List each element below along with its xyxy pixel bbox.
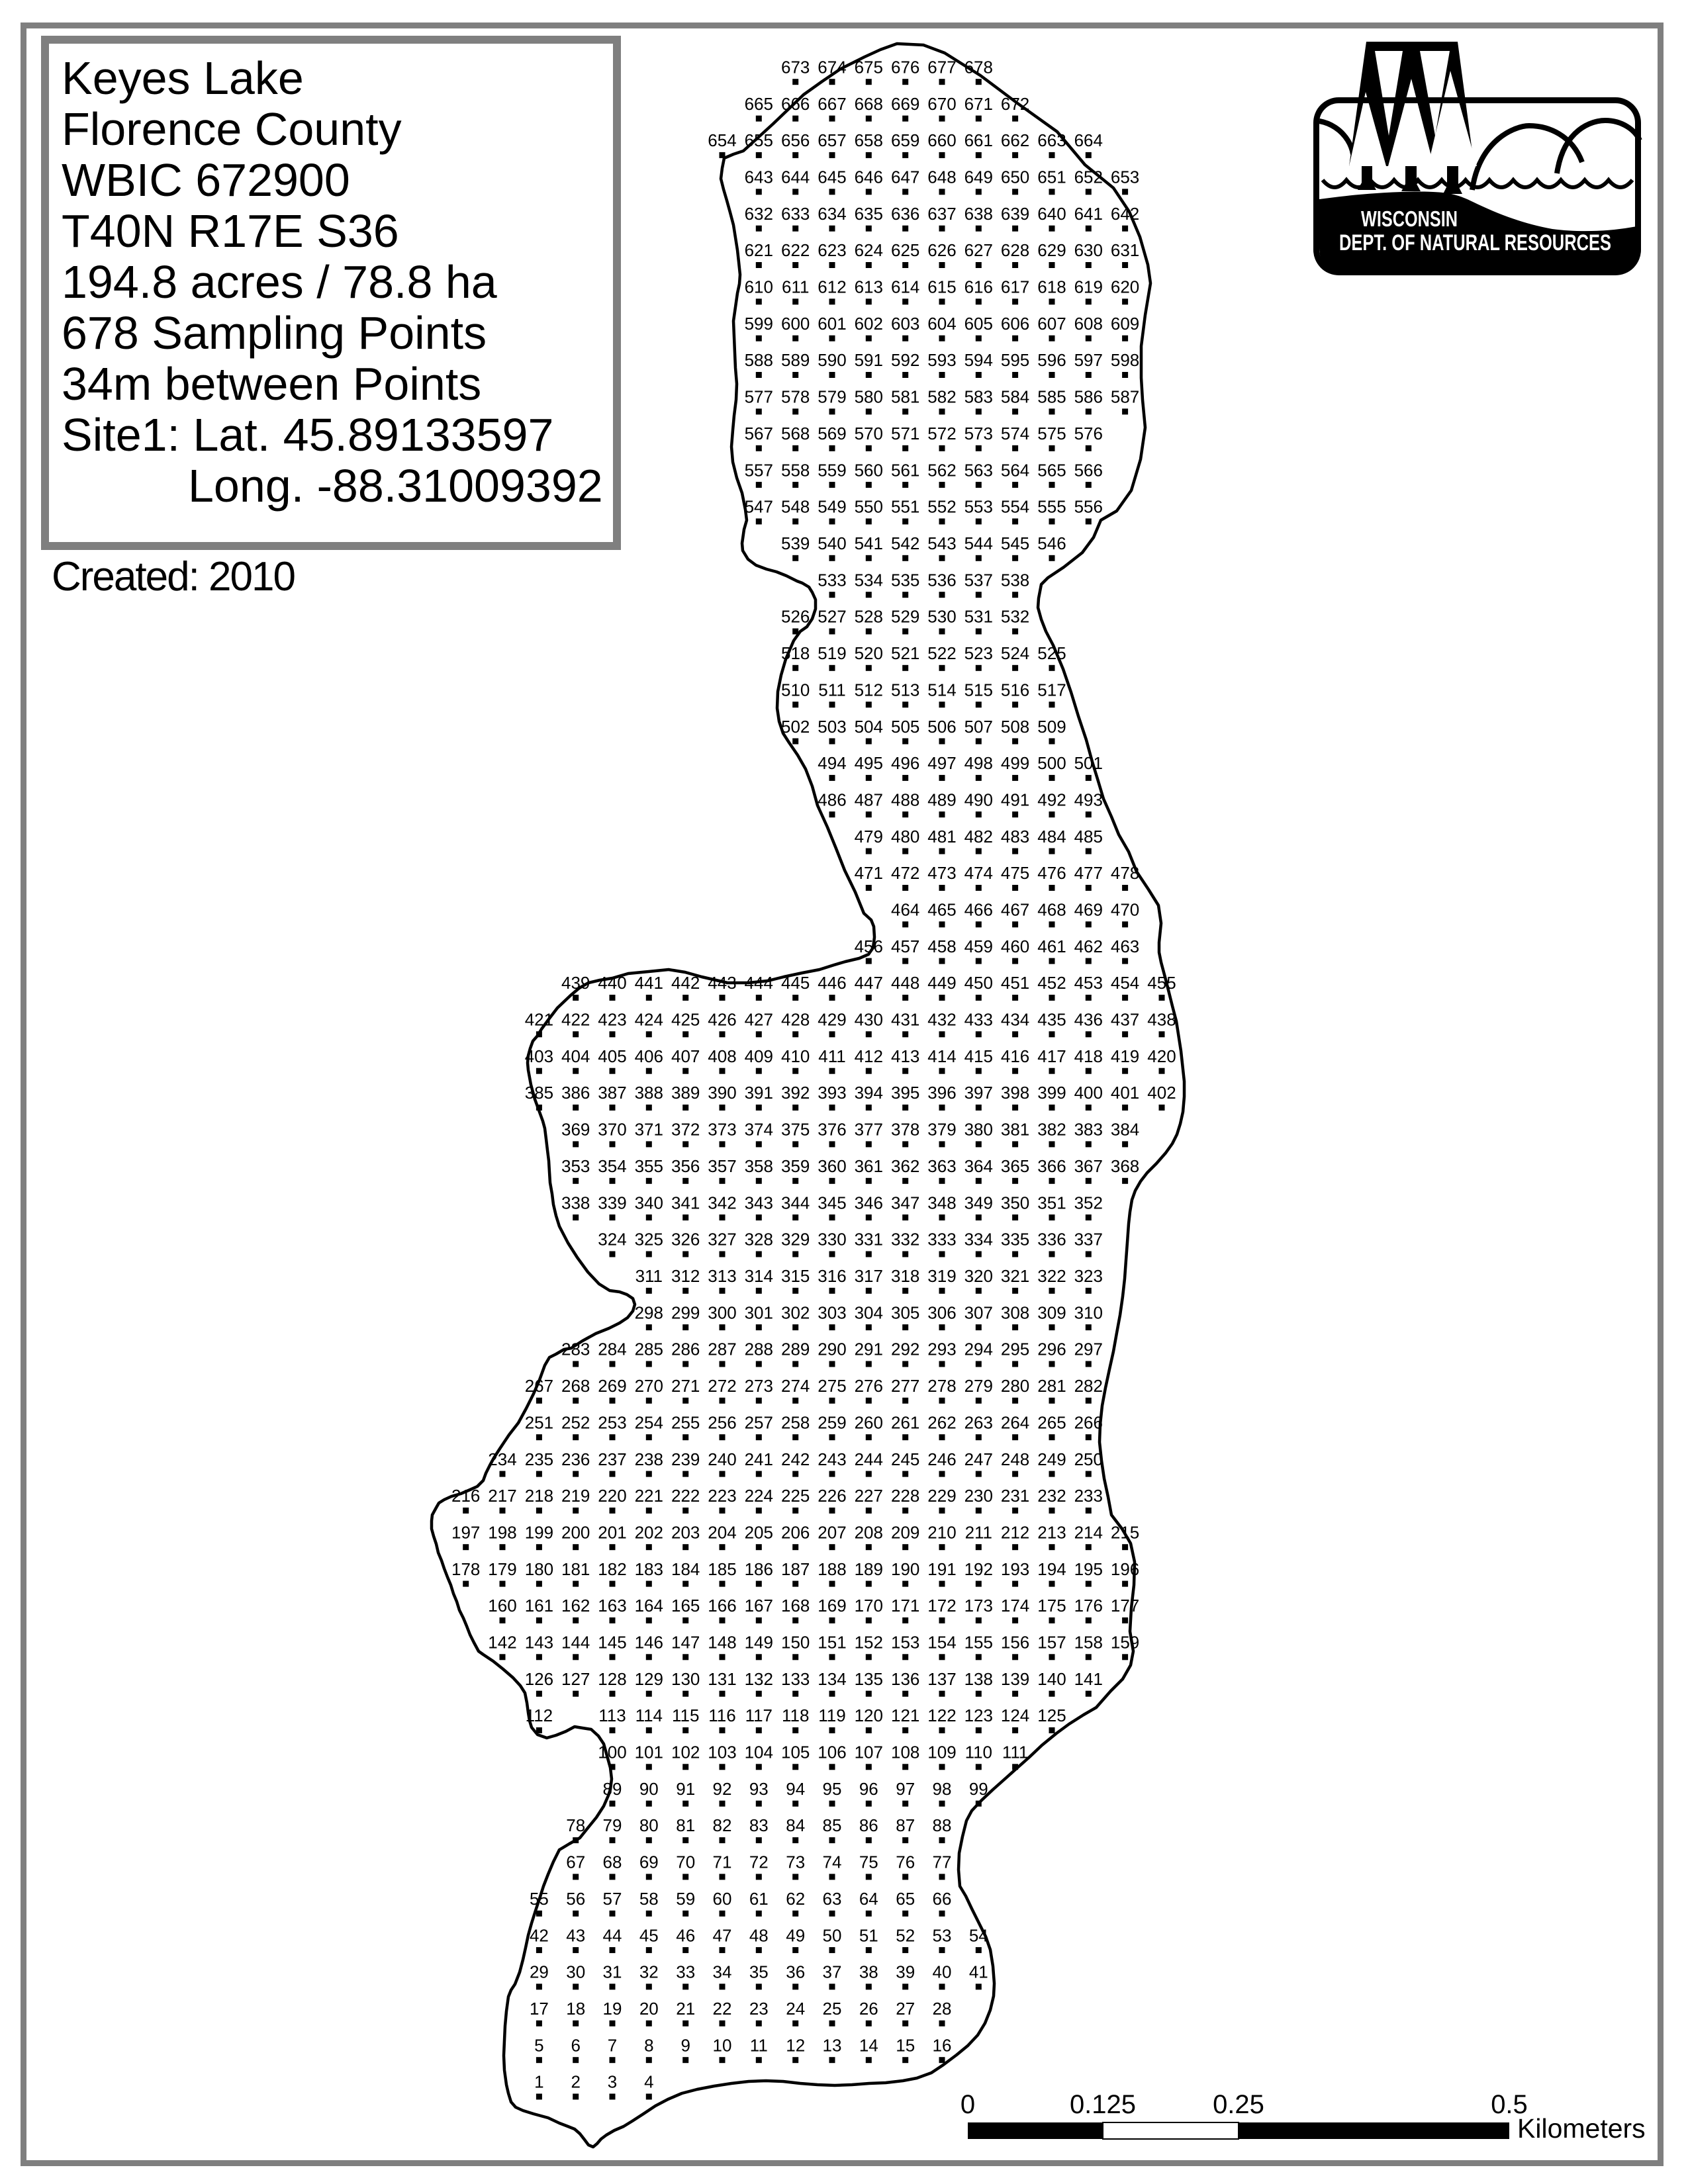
svg-text:632: 632 [745, 204, 773, 224]
svg-text:639: 639 [1001, 204, 1029, 224]
svg-text:197: 197 [451, 1522, 480, 1542]
svg-text:168: 168 [781, 1596, 810, 1615]
svg-text:669: 669 [891, 94, 919, 114]
svg-text:482: 482 [964, 827, 993, 846]
svg-text:369: 369 [561, 1120, 590, 1140]
svg-text:238: 238 [635, 1449, 663, 1469]
svg-text:62: 62 [786, 1889, 805, 1909]
svg-text:519: 519 [818, 643, 846, 663]
svg-text:570: 570 [855, 424, 883, 443]
svg-text:449: 449 [927, 973, 956, 993]
svg-text:29: 29 [530, 1962, 549, 1982]
svg-text:537: 537 [964, 570, 993, 590]
svg-text:196: 196 [1111, 1559, 1139, 1579]
svg-text:421: 421 [525, 1010, 553, 1030]
svg-text:396: 396 [927, 1083, 956, 1103]
svg-text:538: 538 [1001, 570, 1029, 590]
svg-text:562: 562 [927, 460, 956, 480]
svg-text:381: 381 [1001, 1120, 1029, 1140]
svg-text:472: 472 [891, 863, 919, 883]
svg-text:217: 217 [488, 1486, 516, 1506]
svg-text:337: 337 [1074, 1230, 1103, 1250]
svg-text:416: 416 [1001, 1046, 1029, 1066]
svg-text:330: 330 [818, 1230, 846, 1250]
svg-text:120: 120 [855, 1706, 883, 1725]
svg-text:129: 129 [635, 1669, 663, 1689]
svg-text:528: 528 [855, 607, 883, 627]
svg-text:576: 576 [1074, 424, 1103, 443]
svg-text:673: 673 [781, 58, 810, 77]
svg-text:234: 234 [488, 1449, 516, 1469]
svg-text:42: 42 [530, 1925, 549, 1945]
svg-text:588: 588 [745, 350, 773, 370]
svg-text:1: 1 [534, 2072, 543, 2092]
svg-text:291: 291 [855, 1340, 883, 1359]
svg-text:331: 331 [855, 1230, 883, 1250]
svg-text:368: 368 [1111, 1156, 1139, 1176]
svg-text:608: 608 [1074, 314, 1103, 334]
svg-text:450: 450 [964, 973, 993, 993]
svg-text:141: 141 [1074, 1669, 1103, 1689]
svg-text:453: 453 [1074, 973, 1103, 993]
svg-text:619: 619 [1074, 277, 1103, 297]
svg-text:85: 85 [823, 1815, 842, 1835]
svg-text:77: 77 [933, 1852, 952, 1872]
svg-text:578: 578 [781, 387, 810, 407]
svg-text:496: 496 [891, 753, 919, 773]
svg-text:14: 14 [859, 2035, 878, 2055]
svg-text:535: 535 [891, 570, 919, 590]
svg-text:DEPT. OF NATURAL RESOURCES: DEPT. OF NATURAL RESOURCES [1339, 230, 1611, 255]
svg-text:57: 57 [603, 1889, 622, 1909]
svg-text:271: 271 [671, 1376, 700, 1396]
svg-text:469: 469 [1074, 900, 1103, 920]
svg-text:382: 382 [1037, 1120, 1066, 1140]
svg-text:19: 19 [603, 1999, 622, 2019]
svg-text:322: 322 [1037, 1266, 1066, 1286]
svg-text:194: 194 [1037, 1559, 1066, 1579]
svg-text:92: 92 [713, 1779, 732, 1799]
svg-text:Site1: Lat. 45.89133597: Site1: Lat. 45.89133597 [62, 409, 553, 461]
svg-text:334: 334 [964, 1230, 993, 1250]
svg-text:340: 340 [635, 1193, 663, 1212]
svg-text:429: 429 [818, 1010, 846, 1030]
svg-text:467: 467 [1001, 900, 1029, 920]
svg-text:226: 226 [818, 1486, 846, 1506]
svg-text:251: 251 [525, 1412, 553, 1432]
svg-text:364: 364 [964, 1156, 993, 1176]
svg-text:647: 647 [891, 167, 919, 187]
svg-text:392: 392 [781, 1083, 810, 1103]
svg-text:90: 90 [639, 1779, 659, 1799]
svg-text:601: 601 [818, 314, 846, 334]
svg-text:281: 281 [1037, 1376, 1066, 1396]
svg-text:158: 158 [1074, 1633, 1103, 1653]
svg-text:37: 37 [823, 1962, 842, 1982]
svg-text:665: 665 [745, 94, 773, 114]
svg-text:159: 159 [1111, 1633, 1139, 1653]
svg-text:213: 213 [1037, 1522, 1066, 1542]
svg-text:209: 209 [891, 1522, 919, 1542]
svg-text:349: 349 [964, 1193, 993, 1212]
svg-text:84: 84 [786, 1815, 805, 1835]
svg-text:208: 208 [855, 1522, 883, 1542]
svg-text:190: 190 [891, 1559, 919, 1579]
svg-text:28: 28 [933, 1999, 952, 2019]
svg-text:186: 186 [745, 1559, 773, 1579]
svg-text:308: 308 [1001, 1302, 1029, 1322]
svg-text:34: 34 [713, 1962, 732, 1982]
svg-text:391: 391 [745, 1083, 773, 1103]
svg-text:648: 648 [927, 167, 956, 187]
svg-text:64: 64 [859, 1889, 878, 1909]
svg-text:0: 0 [961, 2090, 975, 2119]
svg-text:586: 586 [1074, 387, 1103, 407]
svg-text:635: 635 [855, 204, 883, 224]
svg-text:237: 237 [598, 1449, 626, 1469]
svg-text:336: 336 [1037, 1230, 1066, 1250]
svg-text:45: 45 [639, 1925, 659, 1945]
svg-text:603: 603 [891, 314, 919, 334]
svg-text:355: 355 [635, 1156, 663, 1176]
svg-text:128: 128 [598, 1669, 626, 1689]
svg-text:489: 489 [927, 790, 956, 810]
svg-text:286: 286 [671, 1340, 700, 1359]
svg-text:299: 299 [671, 1302, 700, 1322]
svg-text:118: 118 [782, 1706, 809, 1725]
svg-text:55: 55 [530, 1889, 549, 1909]
svg-text:424: 424 [635, 1010, 663, 1030]
svg-text:672: 672 [1001, 94, 1029, 114]
svg-text:629: 629 [1037, 240, 1066, 260]
svg-text:300: 300 [708, 1302, 736, 1322]
svg-text:495: 495 [855, 753, 883, 773]
svg-text:452: 452 [1037, 973, 1066, 993]
svg-text:499: 499 [1001, 753, 1029, 773]
svg-text:401: 401 [1111, 1083, 1139, 1103]
svg-text:138: 138 [964, 1669, 993, 1689]
svg-text:548: 548 [781, 497, 810, 517]
svg-text:282: 282 [1074, 1376, 1103, 1396]
svg-text:205: 205 [745, 1522, 773, 1542]
svg-text:99: 99 [969, 1779, 988, 1799]
svg-text:223: 223 [708, 1486, 736, 1506]
svg-text:427: 427 [745, 1010, 773, 1030]
svg-text:81: 81 [676, 1815, 695, 1835]
svg-text:316: 316 [818, 1266, 846, 1286]
svg-text:577: 577 [745, 387, 773, 407]
svg-text:618: 618 [1037, 277, 1066, 297]
svg-text:110: 110 [965, 1743, 992, 1762]
svg-text:134: 134 [818, 1669, 846, 1689]
svg-text:521: 521 [891, 643, 919, 663]
svg-text:343: 343 [745, 1193, 773, 1212]
svg-text:270: 270 [635, 1376, 663, 1396]
svg-text:441: 441 [635, 973, 663, 993]
svg-text:310: 310 [1074, 1302, 1103, 1322]
svg-text:587: 587 [1111, 387, 1139, 407]
svg-text:480: 480 [891, 827, 919, 846]
svg-text:674: 674 [818, 58, 846, 77]
svg-text:0.25: 0.25 [1213, 2090, 1264, 2119]
svg-text:597: 597 [1074, 350, 1103, 370]
svg-text:261: 261 [891, 1412, 919, 1432]
svg-text:321: 321 [1001, 1266, 1029, 1286]
svg-text:296: 296 [1037, 1340, 1066, 1359]
svg-text:415: 415 [964, 1046, 993, 1066]
svg-text:488: 488 [891, 790, 919, 810]
svg-text:457: 457 [891, 936, 919, 956]
svg-text:107: 107 [855, 1743, 883, 1762]
svg-text:6: 6 [571, 2035, 580, 2055]
svg-text:117: 117 [745, 1706, 773, 1725]
svg-text:626: 626 [927, 240, 956, 260]
svg-text:23: 23 [749, 1999, 769, 2019]
svg-text:242: 242 [781, 1449, 810, 1469]
svg-text:224: 224 [745, 1486, 773, 1506]
svg-text:447: 447 [855, 973, 883, 993]
svg-text:407: 407 [671, 1046, 700, 1066]
svg-text:414: 414 [927, 1046, 956, 1066]
svg-text:273: 273 [745, 1376, 773, 1396]
svg-text:207: 207 [818, 1522, 846, 1542]
svg-text:263: 263 [964, 1412, 993, 1432]
svg-text:323: 323 [1074, 1266, 1103, 1286]
svg-text:289: 289 [781, 1340, 810, 1359]
svg-text:583: 583 [964, 387, 993, 407]
svg-text:438: 438 [1147, 1010, 1176, 1030]
svg-text:156: 156 [1001, 1633, 1029, 1653]
svg-text:575: 575 [1037, 424, 1066, 443]
svg-text:319: 319 [927, 1266, 956, 1286]
svg-text:573: 573 [964, 424, 993, 443]
svg-text:354: 354 [598, 1156, 626, 1176]
svg-text:523: 523 [964, 643, 993, 663]
svg-text:581: 581 [891, 387, 919, 407]
svg-text:658: 658 [855, 130, 883, 150]
svg-text:294: 294 [964, 1340, 993, 1359]
svg-text:228: 228 [891, 1486, 919, 1506]
svg-text:456: 456 [855, 936, 883, 956]
svg-text:160: 160 [488, 1596, 516, 1615]
svg-text:98: 98 [933, 1779, 952, 1799]
svg-text:678: 678 [964, 58, 993, 77]
svg-text:332: 332 [891, 1230, 919, 1250]
svg-text:2: 2 [571, 2072, 580, 2092]
svg-text:284: 284 [598, 1340, 626, 1359]
svg-text:179: 179 [488, 1559, 516, 1579]
svg-text:114: 114 [635, 1706, 663, 1725]
svg-text:660: 660 [927, 130, 956, 150]
svg-text:542: 542 [891, 533, 919, 553]
svg-text:Kilometers: Kilometers [1517, 2113, 1646, 2144]
svg-text:203: 203 [671, 1522, 700, 1542]
svg-text:147: 147 [671, 1633, 700, 1653]
svg-text:125: 125 [1037, 1706, 1066, 1725]
svg-text:133: 133 [781, 1669, 810, 1689]
svg-text:440: 440 [598, 973, 626, 993]
svg-text:328: 328 [745, 1230, 773, 1250]
svg-text:WISCONSIN: WISCONSIN [1361, 206, 1458, 231]
svg-text:276: 276 [855, 1376, 883, 1396]
svg-text:621: 621 [745, 240, 773, 260]
svg-text:151: 151 [818, 1633, 846, 1653]
svg-text:Keyes Lake: Keyes Lake [62, 52, 304, 104]
svg-text:38: 38 [859, 1962, 878, 1982]
svg-text:505: 505 [891, 717, 919, 737]
svg-text:387: 387 [598, 1083, 626, 1103]
svg-text:Long. -88.31009392: Long. -88.31009392 [188, 460, 603, 512]
svg-text:43: 43 [566, 1925, 585, 1945]
svg-text:220: 220 [598, 1486, 626, 1506]
svg-text:Florence County: Florence County [62, 103, 402, 155]
svg-text:503: 503 [818, 717, 846, 737]
svg-text:302: 302 [781, 1302, 810, 1322]
svg-text:475: 475 [1001, 863, 1029, 883]
svg-text:32: 32 [639, 1962, 659, 1982]
svg-text:36: 36 [786, 1962, 805, 1982]
svg-text:150: 150 [781, 1633, 810, 1653]
svg-text:378: 378 [891, 1120, 919, 1140]
svg-text:199: 199 [525, 1522, 553, 1542]
svg-text:230: 230 [964, 1486, 993, 1506]
svg-text:399: 399 [1037, 1083, 1066, 1103]
svg-text:491: 491 [1001, 790, 1029, 810]
svg-text:574: 574 [1001, 424, 1029, 443]
svg-text:501: 501 [1074, 753, 1103, 773]
svg-text:510: 510 [781, 680, 810, 700]
svg-text:525: 525 [1037, 643, 1066, 663]
svg-text:146: 146 [635, 1633, 663, 1653]
svg-text:404: 404 [561, 1046, 590, 1066]
svg-text:393: 393 [818, 1083, 846, 1103]
svg-text:Created: 2010: Created: 2010 [52, 554, 295, 600]
svg-text:644: 644 [781, 167, 810, 187]
svg-text:225: 225 [781, 1486, 810, 1506]
svg-text:361: 361 [855, 1156, 883, 1176]
svg-text:591: 591 [855, 350, 883, 370]
svg-text:148: 148 [708, 1633, 736, 1653]
svg-text:493: 493 [1074, 790, 1103, 810]
svg-text:494: 494 [818, 753, 846, 773]
svg-text:142: 142 [488, 1633, 516, 1653]
svg-text:47: 47 [713, 1925, 732, 1945]
svg-text:285: 285 [635, 1340, 663, 1359]
svg-text:93: 93 [749, 1779, 769, 1799]
svg-text:550: 550 [855, 497, 883, 517]
svg-text:344: 344 [781, 1193, 810, 1212]
svg-text:377: 377 [855, 1120, 883, 1140]
svg-text:69: 69 [639, 1852, 659, 1872]
svg-text:306: 306 [927, 1302, 956, 1322]
svg-text:520: 520 [855, 643, 883, 663]
svg-text:326: 326 [671, 1230, 700, 1250]
svg-text:422: 422 [561, 1010, 590, 1030]
svg-text:465: 465 [927, 900, 956, 920]
svg-text:305: 305 [891, 1302, 919, 1322]
svg-text:522: 522 [927, 643, 956, 663]
svg-text:655: 655 [745, 130, 773, 150]
svg-text:596: 596 [1037, 350, 1066, 370]
svg-text:406: 406 [635, 1046, 663, 1066]
svg-text:485: 485 [1074, 827, 1103, 846]
svg-text:312: 312 [671, 1266, 700, 1286]
svg-text:659: 659 [891, 130, 919, 150]
svg-text:183: 183 [635, 1559, 663, 1579]
svg-text:311: 311 [635, 1266, 663, 1286]
svg-text:432: 432 [927, 1010, 956, 1030]
svg-text:163: 163 [598, 1596, 626, 1615]
svg-text:375: 375 [781, 1120, 810, 1140]
svg-text:233: 233 [1074, 1486, 1103, 1506]
svg-text:383: 383 [1074, 1120, 1103, 1140]
svg-text:303: 303 [818, 1302, 846, 1322]
svg-text:247: 247 [964, 1449, 993, 1469]
svg-text:75: 75 [859, 1852, 878, 1872]
svg-text:464: 464 [891, 900, 919, 920]
svg-text:504: 504 [855, 717, 883, 737]
svg-text:293: 293 [927, 1340, 956, 1359]
svg-text:515: 515 [964, 680, 993, 700]
svg-text:533: 533 [818, 570, 846, 590]
svg-text:461: 461 [1037, 936, 1066, 956]
svg-text:39: 39 [896, 1962, 915, 1982]
svg-text:333: 333 [927, 1230, 956, 1250]
svg-text:642: 642 [1111, 204, 1139, 224]
svg-text:140: 140 [1037, 1669, 1066, 1689]
svg-text:91: 91 [676, 1779, 695, 1799]
svg-text:444: 444 [745, 973, 773, 993]
svg-text:426: 426 [708, 1010, 736, 1030]
svg-text:313: 313 [708, 1266, 736, 1286]
svg-text:654: 654 [708, 130, 736, 150]
svg-text:468: 468 [1037, 900, 1066, 920]
svg-text:602: 602 [855, 314, 883, 334]
svg-text:516: 516 [1001, 680, 1029, 700]
svg-text:445: 445 [781, 973, 810, 993]
svg-text:200: 200 [561, 1522, 590, 1542]
svg-text:598: 598 [1111, 350, 1139, 370]
svg-text:288: 288 [745, 1340, 773, 1359]
svg-text:254: 254 [635, 1412, 663, 1432]
svg-text:314: 314 [745, 1266, 773, 1286]
svg-text:442: 442 [671, 973, 700, 993]
svg-text:192: 192 [964, 1559, 993, 1579]
svg-text:241: 241 [745, 1449, 773, 1469]
svg-text:600: 600 [781, 314, 810, 334]
svg-text:571: 571 [891, 424, 919, 443]
svg-text:229: 229 [927, 1486, 956, 1506]
svg-text:342: 342 [708, 1193, 736, 1212]
svg-text:3: 3 [608, 2072, 617, 2092]
svg-text:593: 593 [927, 350, 956, 370]
svg-text:568: 568 [781, 424, 810, 443]
svg-text:446: 446 [818, 973, 846, 993]
svg-text:22: 22 [713, 1999, 732, 2019]
svg-text:477: 477 [1074, 863, 1103, 883]
svg-text:410: 410 [781, 1046, 810, 1066]
svg-text:184: 184 [671, 1559, 700, 1579]
svg-text:167: 167 [745, 1596, 773, 1615]
svg-text:500: 500 [1037, 753, 1066, 773]
svg-text:185: 185 [708, 1559, 736, 1579]
svg-text:671: 671 [964, 94, 993, 114]
svg-text:198: 198 [488, 1522, 516, 1542]
svg-text:412: 412 [855, 1046, 883, 1066]
svg-text:72: 72 [749, 1852, 769, 1872]
svg-text:435: 435 [1037, 1010, 1066, 1030]
svg-text:258: 258 [781, 1412, 810, 1432]
